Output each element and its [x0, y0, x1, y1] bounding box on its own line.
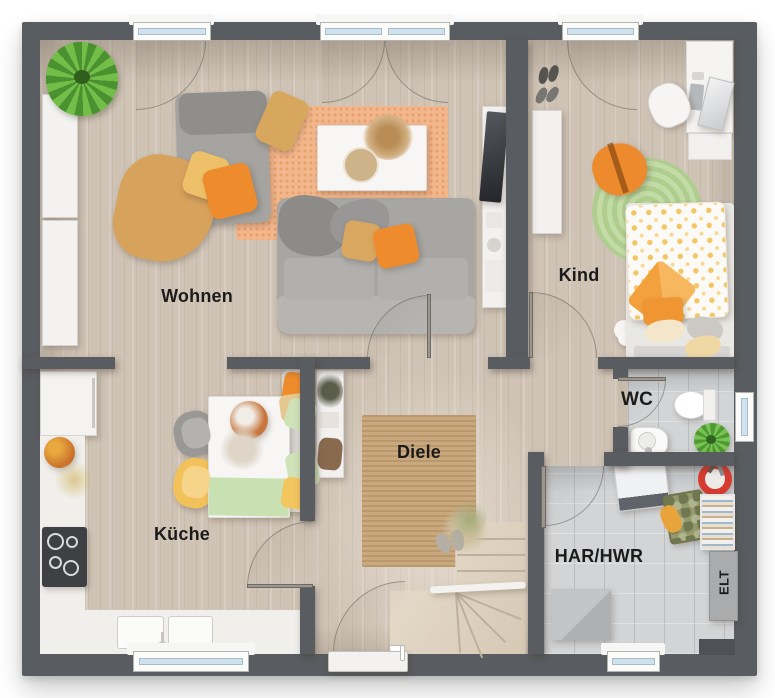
wall-kueche-north-west [22, 357, 115, 369]
wardrobe [532, 110, 562, 234]
chaise-back [178, 90, 267, 135]
corner-dark-box [699, 639, 735, 655]
cabinet-lower [42, 220, 78, 346]
glass-window-kind [567, 28, 634, 35]
glass-window-wohnen-mid-right [388, 28, 445, 35]
glass-window-kueche [139, 658, 243, 665]
wall-wohnen-kind-divider [506, 40, 528, 357]
wall-diele-north-stub [488, 357, 530, 369]
burner-2 [66, 536, 78, 548]
glass-window-wohnen-left [138, 28, 206, 35]
glass-window-wohnen-mid-left [325, 28, 382, 35]
room-label-wc: WC [607, 390, 667, 409]
desk-item [692, 72, 704, 80]
tv-deco-box [486, 212, 502, 228]
room-label-kueche: Küche [132, 525, 232, 543]
table-runner-green [209, 477, 290, 516]
sofa-cushion-left [284, 258, 374, 300]
plant-palm-center [74, 70, 90, 84]
wc-plant-center [706, 435, 716, 444]
sofa-pillow-orange [371, 222, 420, 270]
stair-tread-2 [457, 554, 525, 556]
toilet-tank [703, 389, 716, 421]
washing-machine [613, 460, 670, 512]
room-label-diele: Diele [369, 443, 469, 461]
burner-3 [49, 556, 62, 569]
fridge [40, 371, 97, 436]
table-dried-flowers [219, 428, 265, 470]
wall-kueche-north-east [227, 357, 370, 369]
burner-4 [63, 560, 79, 576]
door-leaf-hwr [541, 466, 546, 528]
shelf-unit [700, 494, 735, 550]
room-label-wohnen: Wohnen [147, 287, 247, 305]
room-label-kind: Kind [539, 266, 619, 284]
entry-door-leaf [328, 651, 408, 672]
wall-hwr-north [604, 452, 734, 466]
door-leaf-wohnen [427, 294, 431, 358]
wall-kueche-east-upper [300, 357, 315, 521]
burner-1 [47, 533, 64, 550]
heater-cube [551, 589, 611, 640]
coffee-table-tray [343, 147, 379, 183]
door-leaf-kueche [247, 584, 313, 588]
wall-kind-south-east [598, 357, 734, 369]
tv-deco-tape [487, 238, 501, 252]
glass-window-hwr [612, 658, 655, 665]
entry-door-handle-hook [400, 645, 405, 661]
desk-return [688, 133, 732, 160]
door-leaf-wc [618, 377, 666, 381]
fridge-handle [92, 378, 95, 428]
door-leaf-kind [529, 292, 533, 358]
console-deco [319, 412, 339, 428]
room-label-har-hwr: HAR/HWR [519, 547, 679, 565]
console-bag [317, 437, 344, 471]
wall-kueche-east-lower [300, 586, 315, 654]
console-plant [317, 372, 343, 410]
stair-tread-3 [457, 570, 525, 572]
glass-window-wc [741, 398, 748, 436]
floorplan-canvas: Wohnen Kind Küche Diele WC HAR/HWR ELT [0, 0, 775, 698]
tv-deco-stack [485, 260, 503, 292]
room-label-elt: ELT [718, 558, 731, 608]
